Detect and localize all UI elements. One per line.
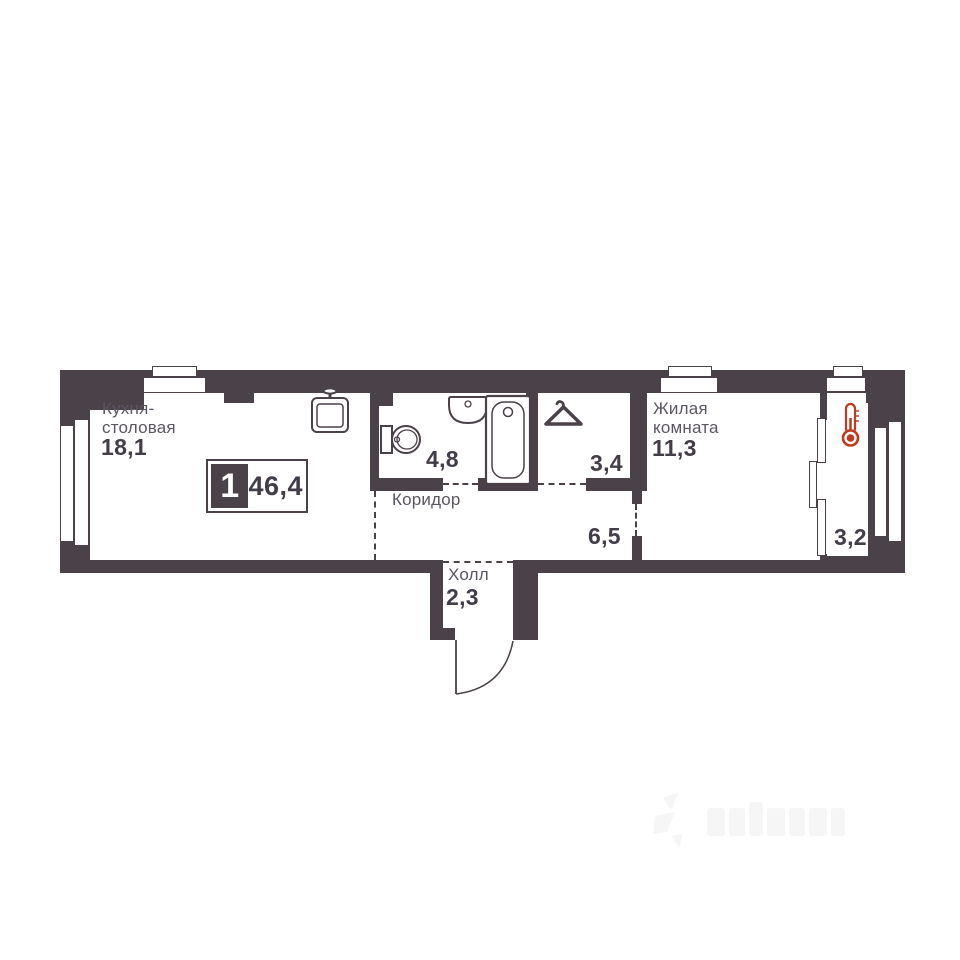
window-balcony-outer — [888, 421, 902, 542]
kitchen-area: 18,1 — [101, 434, 147, 461]
window-kitchen-outer — [60, 425, 74, 542]
balcony-area: 3,2 — [834, 524, 867, 551]
dashed-kitchen-corridor — [374, 491, 376, 560]
wall-hall-right — [513, 560, 538, 640]
living-label: Жилая комната — [653, 399, 743, 437]
kitchen-sink-icon — [308, 384, 352, 436]
balcony-door-frame-bottom — [817, 499, 826, 556]
watermark — [645, 790, 870, 855]
wall-balcony-step — [866, 393, 877, 403]
shaft-left-lower — [143, 377, 206, 393]
bathroom-area: 4,8 — [426, 446, 459, 473]
dashed-living-door — [635, 504, 637, 536]
balcony-door-frame-top — [817, 418, 826, 463]
dashed-wardrobe-door — [538, 483, 586, 485]
corridor-area: 6,5 — [588, 523, 621, 550]
apartment-badge: 1 46,4 — [206, 459, 308, 513]
floor-plan: 1 46,4 Кухня-столовая 18,1 4,8 3,4 Жилая… — [0, 0, 960, 960]
hall-area: 2,3 — [446, 584, 479, 611]
rooms-count: 1 — [211, 464, 248, 508]
total-area: 46,4 — [248, 464, 303, 508]
dashed-bathroom-door — [443, 483, 478, 485]
hanger-icon — [540, 396, 588, 432]
living-area: 11,3 — [652, 435, 697, 462]
shaft-mid-upper — [668, 366, 712, 377]
shaft-right-lower — [826, 377, 866, 392]
entrance-door-arc — [450, 636, 520, 700]
wall-corridor-living-stub-bottom — [632, 536, 642, 560]
dashed-corridor-hall — [443, 561, 513, 563]
corridor-label: Коридор — [392, 490, 512, 509]
shaft-mid-lower — [660, 377, 718, 393]
window-kitchen-inner — [74, 419, 89, 546]
wall-balcony-bottom — [820, 556, 905, 573]
shaft-right-upper — [833, 366, 863, 377]
wall-wardrobe-living — [630, 393, 647, 491]
wall-bottom-left — [60, 560, 430, 573]
hall-label: Холл — [448, 565, 508, 584]
wall-notch-kitchen — [224, 393, 254, 403]
wall-bathroom-stub — [379, 393, 393, 406]
bathtub-icon — [484, 392, 534, 488]
wall-corridor-living-stub-top — [632, 491, 642, 504]
wall-bottom-right — [537, 560, 827, 573]
window-balcony-inner — [874, 427, 887, 537]
thermometer-icon — [838, 400, 866, 448]
kitchen-label: Кухня-столовая — [102, 399, 197, 437]
shaft-left-upper — [152, 366, 197, 377]
wall-wardrobe-bottom — [586, 478, 633, 491]
toilet-icon — [378, 420, 424, 460]
balcony-door-leaf — [809, 461, 817, 508]
wall-balcony-separator-top — [820, 393, 827, 420]
wardrobe-area: 3,4 — [590, 450, 623, 477]
